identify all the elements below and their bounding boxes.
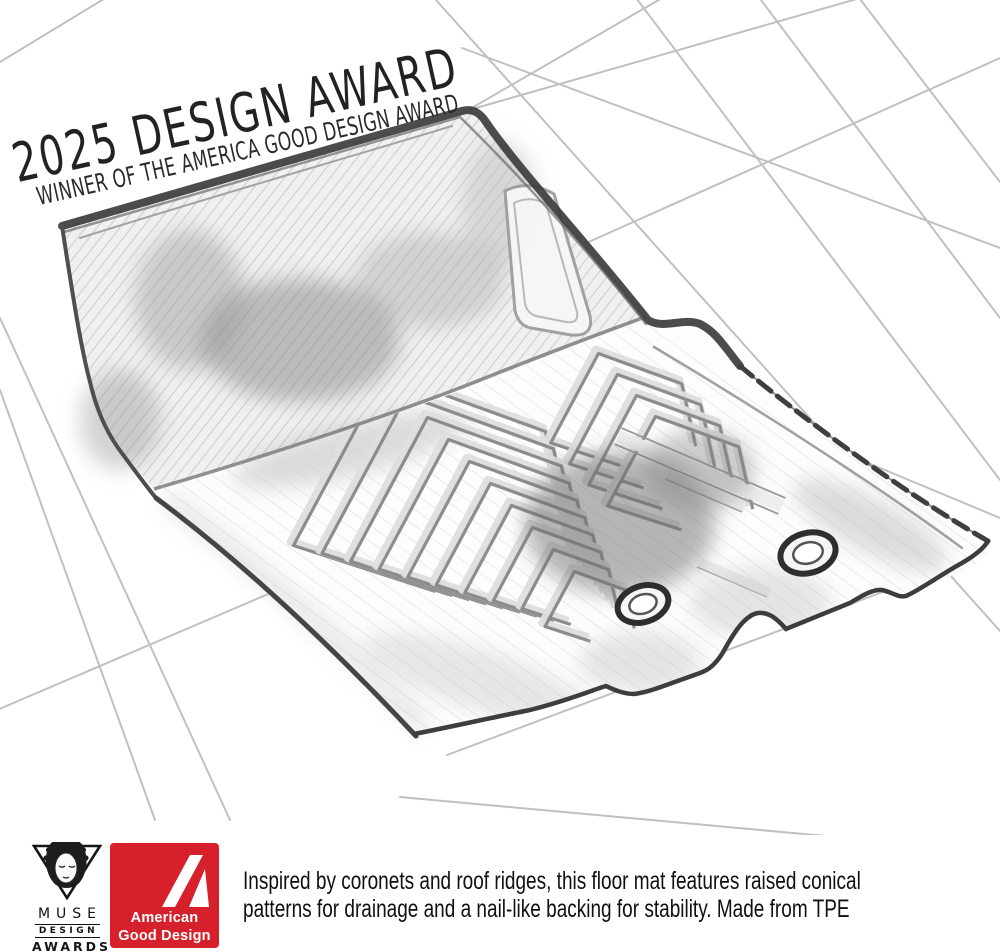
agd-logo-line2: Good Design: [110, 928, 219, 944]
tagline-line-2: patterns for drainage and a nail-like ba…: [243, 895, 861, 923]
agd-logo-line1: American: [110, 910, 219, 926]
muse-design-awards-logo: MUSE DESIGN AWARDS: [29, 842, 105, 952]
american-good-design-logo: American Good Design: [110, 843, 219, 948]
muse-logo-design: DESIGN: [35, 924, 100, 938]
muse-logo-awards: AWARDS: [29, 940, 105, 952]
product-tagline: Inspired by coronets and roof ridges, th…: [243, 867, 861, 923]
tagline-line-1: Inspired by coronets and roof ridges, th…: [243, 867, 861, 895]
muse-face-icon: [29, 842, 105, 900]
product-image: 2025 DESIGN AWARD WINNER OF THE AMERICA …: [0, 0, 1000, 952]
muse-logo-word: MUSE: [29, 907, 105, 922]
